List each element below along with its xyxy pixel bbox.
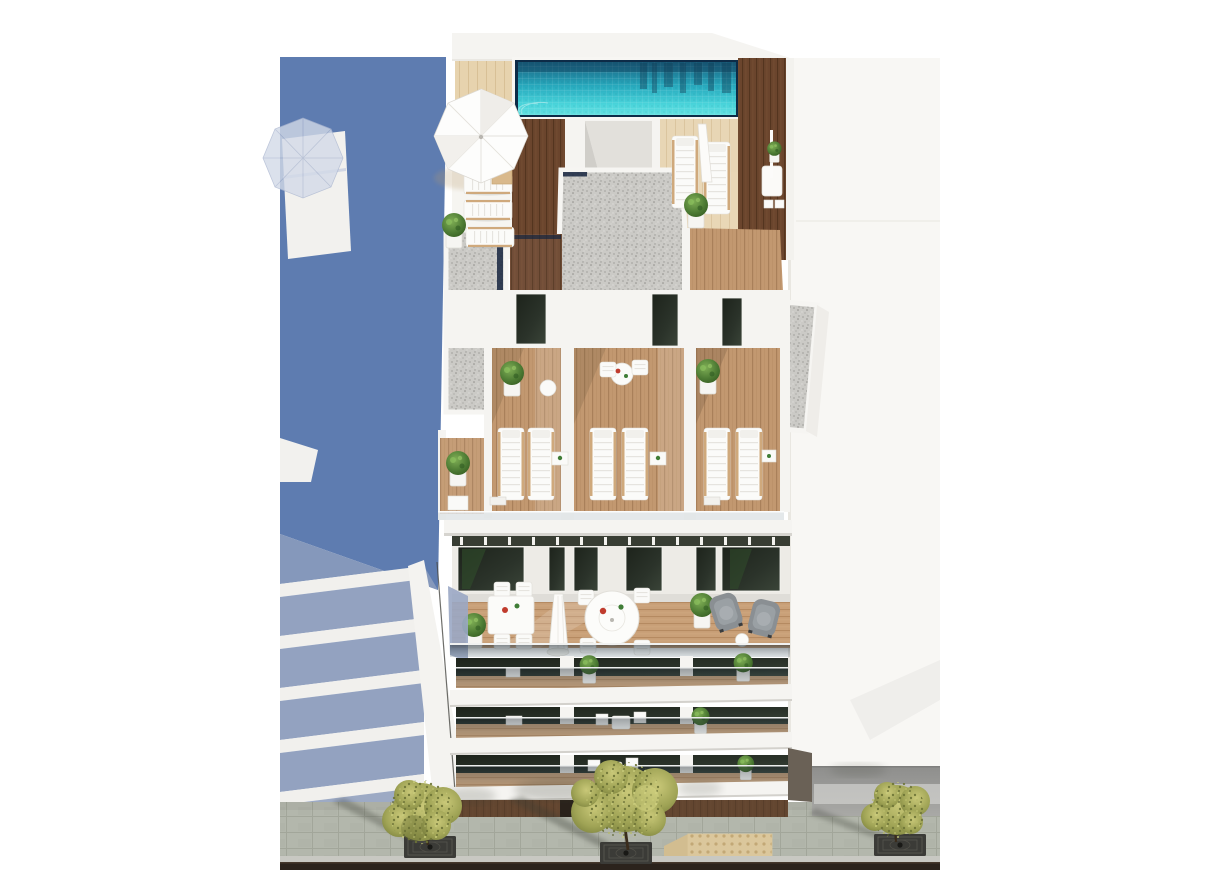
slab-shadow [444, 533, 792, 536]
sun-lounger [464, 200, 512, 222]
table-decor-cup [610, 618, 614, 622]
terrace-glass-balustrade [438, 512, 784, 520]
stool [764, 200, 773, 208]
terrace-door [652, 294, 678, 346]
chair [600, 362, 616, 377]
terrace-divider-wall [484, 292, 492, 518]
terrace-lounger [704, 428, 730, 500]
terrace-lounger [498, 428, 524, 500]
terrace-lounger [622, 428, 648, 500]
ac-vent [704, 497, 720, 505]
parasol-pole [479, 135, 483, 139]
facade-top-slab [444, 520, 792, 535]
terrace-door [516, 294, 546, 344]
upper-terrace-recess [510, 234, 562, 292]
right-terrace-wall [682, 228, 690, 292]
terrace-door [722, 298, 742, 346]
stool [775, 200, 784, 208]
balustrade-handrail [438, 511, 784, 513]
pool-deep-end [518, 62, 736, 72]
glass-strip-recess [511, 235, 561, 239]
handrail [456, 667, 788, 669]
terrace-lounger [528, 428, 554, 500]
table-decor-green [618, 604, 623, 609]
shadow-parasol-silhouette [263, 118, 343, 198]
terrace-lounger [590, 428, 616, 500]
side-table [448, 496, 468, 510]
square-dining-table [488, 596, 534, 634]
glass-strip-center [563, 172, 587, 177]
right-corner-shade [788, 748, 812, 802]
ac-vent [490, 497, 506, 505]
chair [632, 360, 648, 375]
table-decor-green [624, 374, 628, 378]
penthouse-terraces [438, 290, 790, 520]
table-decor-green [515, 604, 520, 609]
table-decor-red [616, 369, 621, 374]
rooftop-pool [512, 57, 742, 119]
terrace-lounger [736, 428, 762, 500]
table-decor-red [502, 607, 508, 613]
sun-lounger [466, 227, 514, 249]
sun-parasol [434, 89, 528, 183]
balcony-band-2 [450, 707, 792, 755]
top-floor-balcony [448, 546, 790, 662]
clerestory-band [452, 536, 790, 546]
balustrade-handrail [450, 643, 790, 645]
terrace-divider-wall [684, 292, 696, 520]
balcony-band-1 [450, 653, 792, 707]
side-table [540, 380, 556, 396]
side-wall-joint-line [796, 220, 940, 222]
upper-right-wood-terrace [690, 228, 783, 292]
render-canvas [0, 0, 1220, 870]
table-decor-red [600, 608, 606, 614]
adjacent-building-shadow [263, 57, 446, 590]
terrace-outer-wall-right [780, 348, 790, 512]
handrail [456, 717, 788, 719]
walkway-parapet [786, 58, 794, 260]
terrace-divider-wall [561, 292, 574, 520]
architectural-render [0, 0, 1220, 870]
sun-streak [658, 348, 684, 512]
